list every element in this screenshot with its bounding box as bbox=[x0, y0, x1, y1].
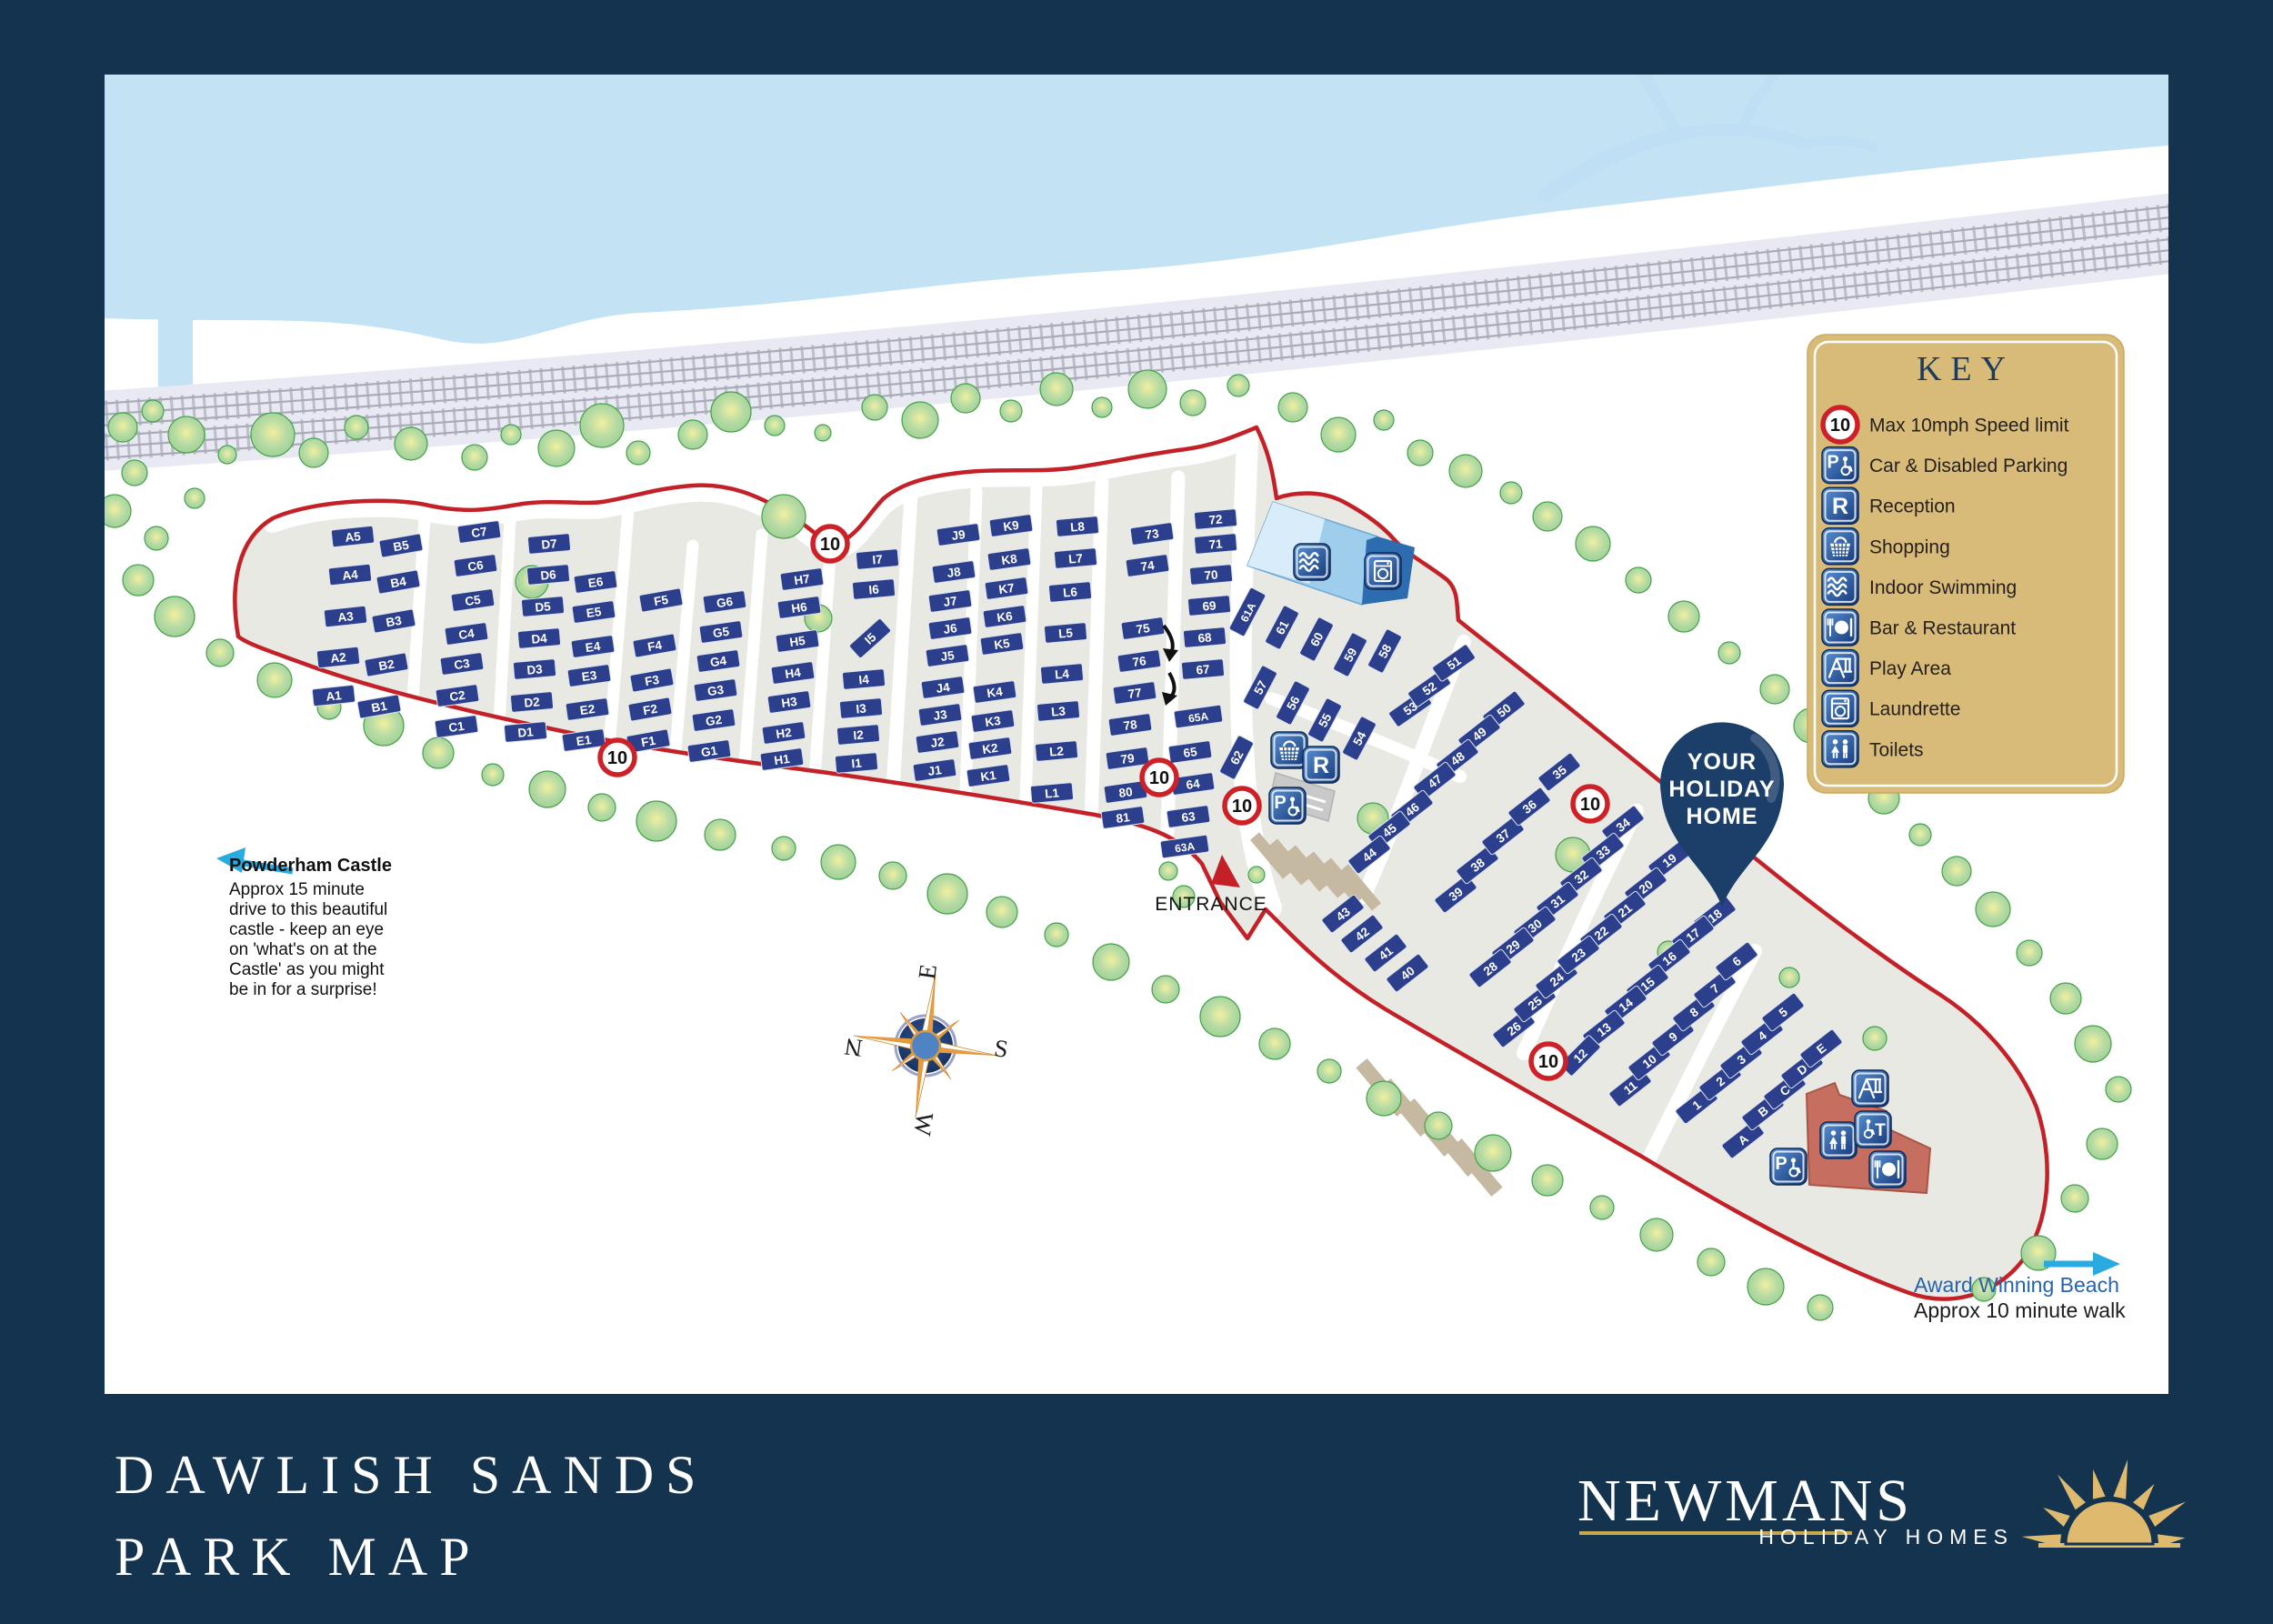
bar-icon bbox=[1869, 1151, 1906, 1188]
plot-label: L7 bbox=[1068, 551, 1084, 566]
plot-label: G5 bbox=[712, 625, 730, 640]
plot-label: I2 bbox=[853, 728, 865, 743]
plot-label: J5 bbox=[940, 648, 956, 664]
plot-I1: I1 bbox=[835, 753, 877, 774]
speed-limit-sign bbox=[813, 526, 847, 561]
park-map-svg: R P bbox=[0, 0, 2273, 1624]
plot-label: 80 bbox=[1118, 785, 1134, 800]
tree bbox=[1045, 923, 1068, 947]
tree bbox=[1407, 440, 1433, 466]
plot-label: J7 bbox=[943, 594, 958, 609]
legend-title: KEY bbox=[1917, 350, 2015, 388]
plot-D3: D3 bbox=[513, 659, 556, 680]
plot-label: 74 bbox=[1140, 558, 1156, 574]
plot-label: 69 bbox=[1202, 598, 1217, 613]
plot-label: I3 bbox=[856, 701, 867, 716]
tree bbox=[902, 402, 938, 438]
tree bbox=[251, 413, 295, 456]
svg-text:Approx 15 minute: Approx 15 minute bbox=[229, 880, 365, 899]
plot-label: G4 bbox=[709, 654, 727, 669]
tree bbox=[580, 404, 624, 447]
plot-label: L4 bbox=[1055, 667, 1070, 681]
plot-D1: D1 bbox=[504, 722, 546, 743]
play-icon bbox=[1822, 650, 1858, 687]
plot-label: L3 bbox=[1051, 704, 1066, 718]
reception-icon bbox=[1822, 487, 1858, 524]
disabled-icon bbox=[1855, 1111, 1891, 1148]
plot-label: D4 bbox=[531, 631, 548, 646]
play-icon bbox=[1852, 1070, 1888, 1107]
plot-label: F3 bbox=[644, 673, 661, 689]
plot-label: D7 bbox=[541, 536, 558, 551]
tree bbox=[1475, 1135, 1511, 1171]
plot-L2: L2 bbox=[1035, 741, 1077, 762]
plot-label: G2 bbox=[705, 713, 723, 728]
plot-label: G3 bbox=[706, 683, 725, 698]
plot-68: 68 bbox=[1183, 627, 1226, 648]
tree bbox=[1760, 675, 1789, 704]
plot-label: A4 bbox=[342, 567, 359, 583]
plot-label: E5 bbox=[586, 605, 603, 620]
plot-A2: A2 bbox=[316, 647, 360, 668]
plot-D2: D2 bbox=[510, 692, 553, 713]
poster-title-line1: DAWLISH SANDS bbox=[115, 1445, 708, 1505]
tree bbox=[1425, 1112, 1452, 1139]
tree bbox=[1040, 373, 1073, 406]
plot-label: H6 bbox=[790, 600, 808, 616]
bar-icon bbox=[1822, 609, 1858, 646]
plot-D7: D7 bbox=[527, 534, 570, 555]
plot-label: E1 bbox=[576, 733, 593, 748]
plot-L8: L8 bbox=[1056, 516, 1098, 537]
speed-icon bbox=[1823, 407, 1857, 442]
plot-A5: A5 bbox=[331, 526, 375, 547]
plot-label: K9 bbox=[1002, 518, 1019, 534]
plot-label: 65 bbox=[1183, 745, 1198, 760]
plot-label: D1 bbox=[517, 725, 535, 739]
tree bbox=[345, 416, 368, 439]
plot-label: K3 bbox=[984, 714, 1002, 729]
tree bbox=[815, 425, 831, 441]
speed-limit-sign bbox=[1225, 788, 1259, 823]
tree bbox=[711, 392, 751, 432]
tree bbox=[1718, 642, 1740, 664]
tree bbox=[1000, 400, 1022, 422]
tree bbox=[951, 384, 980, 413]
plot-label: C5 bbox=[464, 593, 482, 608]
plot-label: 73 bbox=[1145, 526, 1160, 542]
plot-label: B3 bbox=[385, 614, 403, 630]
plot-I2: I2 bbox=[836, 725, 879, 746]
plot-label: C4 bbox=[457, 627, 476, 642]
tree bbox=[2061, 1185, 2088, 1212]
plot-label: 77 bbox=[1127, 686, 1143, 701]
svg-text:HOME: HOME bbox=[1687, 804, 1758, 829]
shopping-icon bbox=[1822, 528, 1858, 565]
tree bbox=[1278, 393, 1307, 422]
tree bbox=[1640, 1218, 1673, 1251]
plot-label: F4 bbox=[646, 638, 664, 655]
tree bbox=[145, 526, 168, 550]
speed-limit-sign bbox=[600, 740, 635, 775]
tree bbox=[1532, 1165, 1563, 1196]
park-map-poster: R P bbox=[0, 0, 2273, 1624]
svg-text:HOLIDAY: HOLIDAY bbox=[1668, 777, 1775, 802]
plot-D5: D5 bbox=[521, 596, 564, 617]
tree bbox=[986, 897, 1017, 927]
svg-text:Approx 10 minute walk: Approx 10 minute walk bbox=[1914, 1298, 2126, 1322]
tree bbox=[529, 771, 566, 807]
plot-label: F1 bbox=[640, 734, 657, 750]
plot-L7: L7 bbox=[1054, 548, 1096, 569]
tree bbox=[1200, 997, 1240, 1037]
plot-label: L8 bbox=[1070, 519, 1086, 534]
plot-label: I1 bbox=[851, 756, 863, 770]
tree bbox=[482, 764, 504, 786]
plot-label: 75 bbox=[1136, 621, 1151, 637]
plot-label: I7 bbox=[872, 553, 884, 567]
tree bbox=[927, 874, 967, 914]
plot-label: H7 bbox=[793, 572, 810, 587]
tree bbox=[588, 794, 616, 821]
tree bbox=[1259, 1028, 1290, 1059]
legend-item-label: Shopping bbox=[1869, 536, 1950, 557]
tree bbox=[1909, 824, 1931, 846]
plot-label: D6 bbox=[540, 567, 557, 582]
plot-A1: A1 bbox=[312, 685, 355, 707]
tree bbox=[705, 819, 736, 850]
tree bbox=[1159, 862, 1177, 880]
plot-label: E4 bbox=[585, 639, 602, 655]
tree bbox=[1092, 397, 1112, 417]
plot-D4: D4 bbox=[517, 628, 560, 649]
plot-label: L5 bbox=[1058, 626, 1074, 640]
tree bbox=[1093, 944, 1129, 980]
tree bbox=[1374, 410, 1394, 430]
plot-label: G6 bbox=[716, 595, 734, 610]
plot-L4: L4 bbox=[1040, 664, 1083, 685]
plot-I6: I6 bbox=[852, 579, 895, 600]
plot-label: H2 bbox=[775, 726, 792, 741]
svg-text:Powderham Castle: Powderham Castle bbox=[229, 856, 392, 876]
reception-icon bbox=[1303, 747, 1339, 783]
plot-L1: L1 bbox=[1030, 783, 1073, 804]
tree bbox=[1863, 1027, 1887, 1050]
speed-limit-sign bbox=[1531, 1044, 1566, 1078]
tree bbox=[1807, 1295, 1833, 1320]
plot-label: H3 bbox=[780, 695, 798, 710]
plot-I4: I4 bbox=[842, 669, 885, 690]
compass-n: N bbox=[843, 1033, 864, 1062]
plot-L5: L5 bbox=[1044, 623, 1086, 644]
tree bbox=[1180, 390, 1206, 416]
plot-label: I4 bbox=[858, 672, 870, 687]
plot-72: 72 bbox=[1194, 509, 1237, 530]
plot-label: G1 bbox=[700, 744, 718, 759]
legend-item-label: Max 10mph Speed limit bbox=[1869, 416, 2069, 436]
tree bbox=[1152, 976, 1179, 1003]
tree bbox=[462, 445, 487, 470]
plot-label: 76 bbox=[1132, 654, 1147, 669]
plot-label: I6 bbox=[868, 582, 880, 596]
svg-text:YOUR: YOUR bbox=[1687, 749, 1757, 775]
plot-L3: L3 bbox=[1036, 701, 1079, 722]
legend-item-label: Indoor Swimming bbox=[1869, 577, 2017, 598]
tree bbox=[1976, 892, 2010, 927]
tree bbox=[123, 565, 154, 596]
tree bbox=[423, 737, 454, 768]
entrance-label: ENTRANCE bbox=[1155, 894, 1267, 915]
plot-label: C6 bbox=[466, 558, 485, 574]
parking-icon bbox=[1770, 1148, 1807, 1185]
plot-label: K6 bbox=[996, 609, 1014, 625]
plot-A3: A3 bbox=[324, 606, 367, 627]
plot-label: E6 bbox=[587, 575, 605, 590]
tree bbox=[1321, 417, 1356, 452]
plot-A4: A4 bbox=[328, 564, 372, 586]
plot-label: C1 bbox=[447, 719, 466, 735]
tree bbox=[206, 639, 234, 667]
plot-label: L2 bbox=[1049, 744, 1065, 758]
plot-label: 71 bbox=[1208, 536, 1224, 551]
tree bbox=[1449, 455, 1482, 487]
toilets-icon bbox=[1822, 731, 1858, 767]
legend-item-label: Car & Disabled Parking bbox=[1869, 456, 2068, 476]
tree bbox=[257, 663, 292, 697]
plot-label: K2 bbox=[981, 741, 998, 757]
plot-label: J9 bbox=[951, 527, 966, 543]
tree bbox=[1668, 601, 1699, 632]
swim-icon bbox=[1822, 568, 1858, 605]
tree bbox=[2017, 940, 2042, 966]
plot-label: K5 bbox=[993, 637, 1011, 652]
tree bbox=[108, 413, 137, 442]
tree bbox=[168, 416, 205, 453]
tree bbox=[1697, 1248, 1725, 1276]
tree bbox=[1533, 502, 1562, 531]
plot-label: K8 bbox=[1000, 552, 1018, 567]
plot-label: 70 bbox=[1204, 567, 1218, 582]
plot-I7: I7 bbox=[856, 549, 898, 570]
plot-label: J2 bbox=[930, 735, 946, 750]
tree bbox=[1248, 867, 1265, 883]
toilets-icon bbox=[1820, 1122, 1857, 1158]
plot-label: C7 bbox=[470, 525, 487, 540]
plot-label: A2 bbox=[330, 650, 347, 666]
tree bbox=[626, 441, 650, 465]
plot-label: J1 bbox=[927, 763, 943, 778]
plot-label: L1 bbox=[1045, 786, 1060, 800]
tree bbox=[1576, 526, 1610, 561]
plot-label: A1 bbox=[325, 688, 343, 704]
shopping-icon bbox=[1271, 732, 1307, 768]
svg-text:drive to this beautiful: drive to this beautiful bbox=[229, 900, 387, 919]
tree bbox=[538, 430, 575, 466]
svg-text:be in for a surprise!: be in for a surprise! bbox=[229, 980, 377, 999]
tree bbox=[1747, 1268, 1784, 1305]
plot-label: B2 bbox=[377, 657, 396, 674]
tree bbox=[879, 862, 906, 889]
tree bbox=[772, 837, 796, 860]
tree bbox=[678, 420, 707, 449]
tree bbox=[1626, 567, 1651, 593]
plot-label: J4 bbox=[936, 680, 951, 696]
tree bbox=[636, 801, 676, 841]
laundrette-icon bbox=[1365, 553, 1401, 589]
plot-label: E2 bbox=[579, 702, 596, 717]
plot-label: 63 bbox=[1181, 809, 1197, 825]
tree bbox=[501, 425, 521, 445]
svg-text:Award Winning Beach: Award Winning Beach bbox=[1914, 1273, 2119, 1297]
laundrette-icon bbox=[1822, 690, 1858, 727]
plot-label: H4 bbox=[784, 666, 802, 681]
powderham-note: Powderham Castle Approx 15 minute drive … bbox=[216, 847, 392, 999]
plot-label: F2 bbox=[642, 702, 658, 718]
plot-label: L6 bbox=[1063, 585, 1078, 599]
plot-label: K4 bbox=[986, 685, 1004, 700]
plot-label: 72 bbox=[1208, 512, 1223, 526]
svg-text:Castle' as you might: Castle' as you might bbox=[229, 960, 385, 979]
tree bbox=[142, 400, 164, 422]
plot-label: E3 bbox=[581, 668, 598, 684]
plot-label: A3 bbox=[337, 609, 355, 625]
plot-label: D3 bbox=[526, 662, 544, 677]
plot-label: B1 bbox=[370, 699, 388, 716]
legend-item-label: Laundrette bbox=[1869, 699, 1960, 720]
plot-label: 67 bbox=[1196, 662, 1210, 677]
legend-item-label: Bar & Restaurant bbox=[1869, 618, 2016, 639]
plot-label: 64 bbox=[1186, 777, 1201, 792]
plot-label: A5 bbox=[345, 529, 362, 545]
svg-text:on 'what's on at the: on 'what's on at the bbox=[229, 940, 377, 959]
speed-limit-sign bbox=[1142, 760, 1177, 795]
legend-item-label: Reception bbox=[1869, 496, 1956, 517]
tree bbox=[2106, 1077, 2131, 1102]
tree bbox=[1317, 1059, 1341, 1083]
plot-70: 70 bbox=[1189, 565, 1232, 586]
plot-71: 71 bbox=[1194, 534, 1237, 555]
plot-label: B5 bbox=[392, 538, 410, 555]
plot-label: F5 bbox=[653, 593, 670, 609]
svg-text:castle - keep an eye: castle - keep an eye bbox=[229, 920, 384, 939]
plot-label: 68 bbox=[1197, 630, 1213, 645]
plot-D6: D6 bbox=[526, 565, 569, 586]
plot-label: C3 bbox=[453, 657, 471, 672]
tree bbox=[1590, 1196, 1614, 1219]
plot-label: C2 bbox=[448, 688, 466, 704]
parking-icon bbox=[1269, 787, 1306, 824]
tree bbox=[862, 395, 887, 420]
plot-label: B4 bbox=[389, 575, 407, 591]
tree bbox=[299, 438, 328, 467]
tree bbox=[2087, 1128, 2118, 1159]
tree bbox=[185, 488, 205, 508]
poster-title-line2: PARK MAP bbox=[115, 1527, 482, 1587]
tree bbox=[1367, 1081, 1401, 1116]
tree bbox=[1227, 375, 1249, 396]
plot-label: H5 bbox=[788, 634, 806, 649]
plot-label: D2 bbox=[524, 695, 541, 709]
plot-label: J6 bbox=[943, 621, 958, 637]
legend-item-label: Play Area bbox=[1869, 658, 1951, 679]
swim-icon bbox=[1294, 544, 1330, 580]
tree bbox=[762, 495, 806, 538]
tree bbox=[1779, 967, 1799, 987]
tree bbox=[2075, 1026, 2111, 1062]
speed-limit-sign bbox=[1573, 787, 1607, 821]
plot-67: 67 bbox=[1181, 659, 1224, 680]
tree bbox=[765, 416, 785, 436]
tree bbox=[218, 446, 236, 464]
plot-L6: L6 bbox=[1048, 582, 1091, 603]
tree bbox=[1942, 857, 1971, 886]
plot-label: 78 bbox=[1123, 717, 1138, 733]
tree bbox=[821, 845, 856, 879]
plot-label: J8 bbox=[946, 565, 962, 580]
legend-item-label: Toilets bbox=[1869, 739, 1924, 760]
plot-label: D5 bbox=[535, 599, 552, 614]
plot-label: 79 bbox=[1120, 751, 1136, 767]
plot-I3: I3 bbox=[839, 698, 882, 719]
compass-w: W bbox=[908, 1111, 938, 1138]
plot-label: K1 bbox=[979, 768, 997, 784]
tree bbox=[2050, 983, 2081, 1014]
plot-label: H1 bbox=[773, 752, 791, 767]
plot-label: J3 bbox=[933, 707, 948, 723]
tree bbox=[122, 460, 147, 486]
parking-icon bbox=[1822, 447, 1858, 484]
tree bbox=[395, 427, 427, 460]
brand-tagline: HOLIDAY HOMES bbox=[1758, 1525, 2014, 1549]
tree bbox=[1128, 370, 1167, 408]
plot-69: 69 bbox=[1187, 596, 1230, 617]
tree bbox=[155, 596, 195, 637]
tree bbox=[1500, 482, 1522, 504]
plot-label: K7 bbox=[997, 581, 1015, 596]
legend-panel: KEY Max 10mph Speed limitCar & Disabled … bbox=[1807, 335, 2124, 793]
plot-label: 81 bbox=[1116, 810, 1131, 826]
